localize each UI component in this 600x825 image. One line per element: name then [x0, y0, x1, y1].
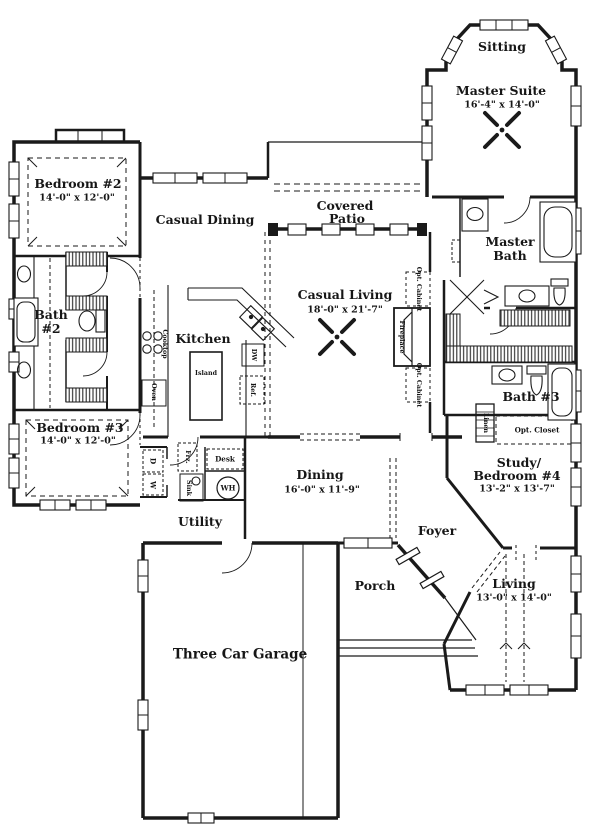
- room-label-master-bath-1: Master: [485, 236, 534, 249]
- fixture-label-opt-cabinet-upper: Opt. Cabinet: [415, 267, 421, 312]
- room-dims-casual-living: 18'-0" x 21'-7": [307, 305, 383, 315]
- room-label-bath-3: Bath #3: [502, 391, 559, 404]
- room-label-study-2: Bedroom #4: [473, 470, 560, 483]
- floorplan-drawing: [0, 0, 600, 825]
- room-dims-bedroom-3: 14'-0" x 12'-0": [40, 436, 116, 446]
- fixture-label-sink: Sink: [185, 480, 191, 496]
- fixture-label-oven: Oven: [150, 383, 156, 401]
- room-label-covered-patio-2: Patio: [329, 213, 365, 226]
- room-label-casual-living: Casual Living: [298, 289, 393, 302]
- fan-master-suite: [485, 113, 519, 147]
- room-dims-bedroom-2: 14'-0" x 12'-0": [39, 193, 115, 203]
- room-label-porch: Porch: [355, 580, 396, 593]
- room-dims-living: 13'-0" x 14'-0": [476, 593, 552, 603]
- fixture-label-dryer: D: [149, 458, 156, 464]
- fixture-label-water-heater: WH: [221, 484, 236, 491]
- fixture-label-washer: W: [149, 481, 156, 489]
- room-label-foyer: Foyer: [418, 525, 456, 538]
- fixture-label-island: Island: [195, 371, 217, 377]
- room-label-utility: Utility: [178, 516, 222, 529]
- fan-casual-living: [320, 320, 354, 354]
- fixture-label-linen: Linen: [482, 413, 488, 433]
- fixture-label-refrigerator: Ref.: [249, 383, 255, 397]
- room-label-dining: Dining: [296, 469, 343, 482]
- fixture-label-opt-closet: Opt. Closet: [515, 426, 560, 433]
- room-label-master-suite: Master Suite: [456, 85, 546, 98]
- room-label-sitting: Sitting: [478, 41, 526, 54]
- fixture-label-opt-cabinet-lower: Opt. Cabinet: [415, 363, 421, 408]
- fixture-label-freezer: Frz.: [184, 450, 190, 463]
- fixture-label-dishwasher: DW: [250, 349, 256, 362]
- room-label-kitchen: Kitchen: [175, 333, 230, 346]
- room-dims-study: 13'-2" x 13'-7": [479, 484, 555, 494]
- room-label-master-bath-2: Bath: [493, 250, 527, 263]
- room-label-bedroom-3: Bedroom #3: [36, 422, 123, 435]
- floor-plan: Sitting Master Suite 16'-4" x 14'-0" Bed…: [0, 0, 600, 825]
- room-label-living: Living: [492, 578, 535, 591]
- room-dims-master-suite: 16'-4" x 14'-0": [464, 100, 540, 110]
- room-dims-dining: 16'-0" x 11'-9": [284, 485, 360, 495]
- fixture-label-fireplace: Fireplace: [398, 321, 404, 354]
- room-label-garage: Three Car Garage: [173, 648, 307, 662]
- fixture-label-cooktop: Cooktop: [161, 329, 167, 358]
- room-label-bath-2-1: Bath: [34, 309, 68, 322]
- room-label-bath-2-2: #2: [41, 323, 60, 336]
- door-openings: [104, 193, 540, 552]
- room-label-bedroom-2: Bedroom #2: [34, 178, 121, 191]
- fixture-label-desk: Desk: [215, 455, 235, 462]
- room-label-casual-dining: Casual Dining: [156, 214, 255, 227]
